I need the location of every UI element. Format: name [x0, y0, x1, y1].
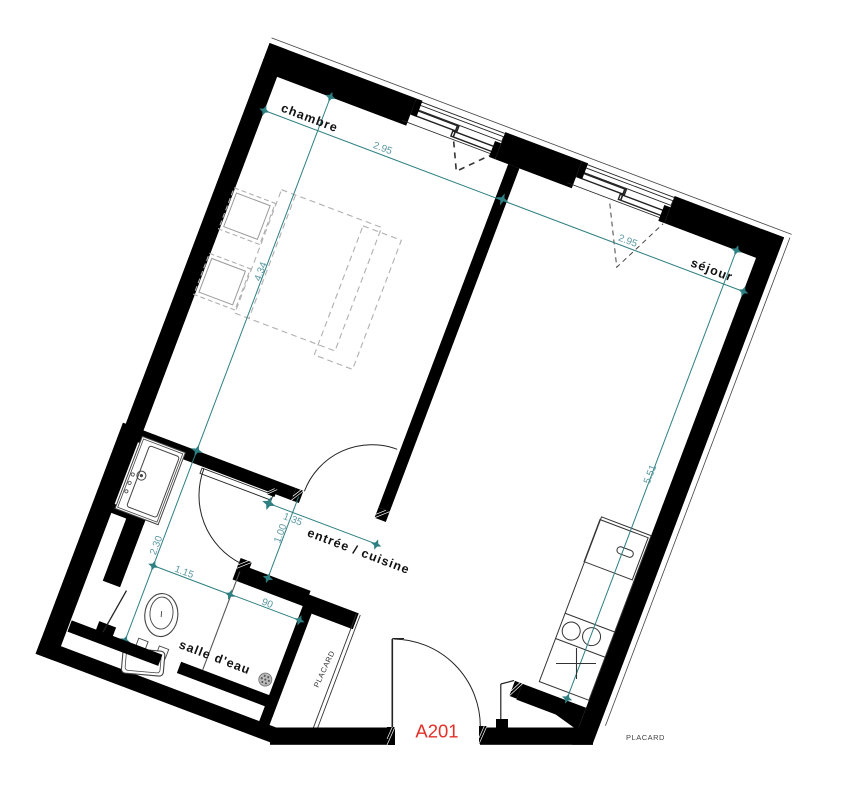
- svg-text:A201: A201: [415, 721, 458, 742]
- svg-text:PLACARD: PLACARD: [626, 733, 665, 742]
